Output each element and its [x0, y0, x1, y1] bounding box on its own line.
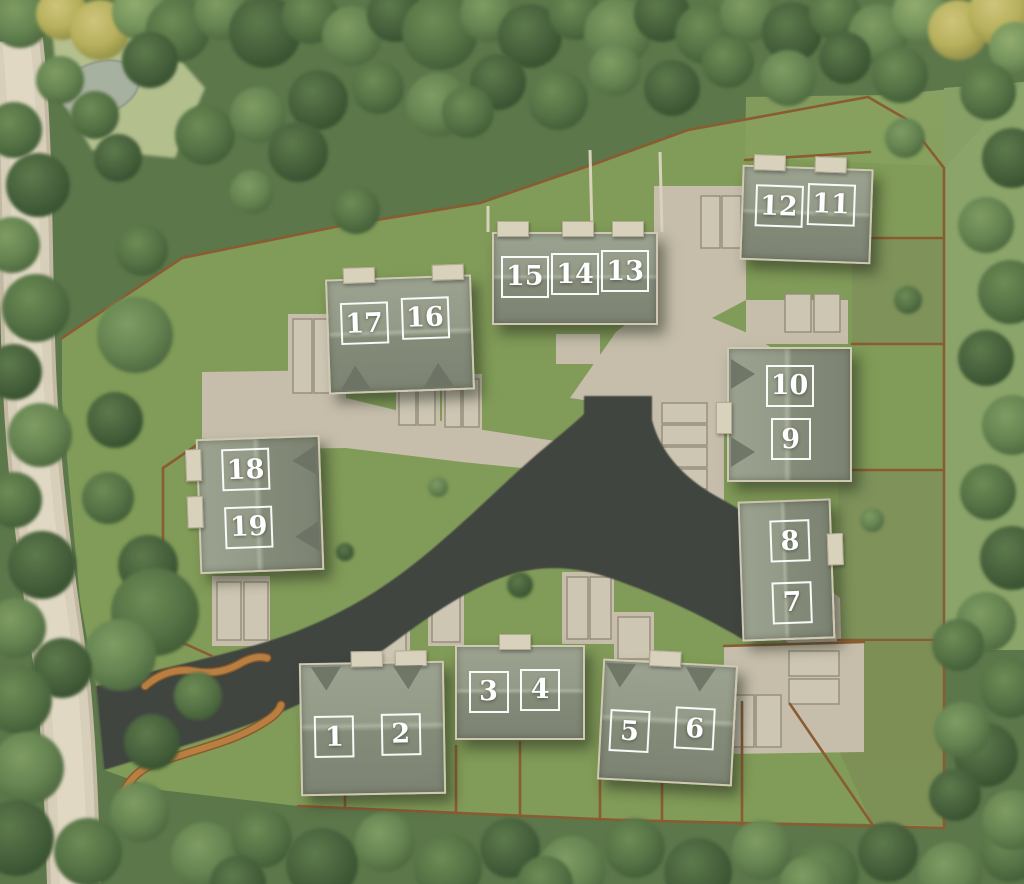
building-plots-18-19: 1819	[196, 435, 325, 574]
plot-number-plaque[interactable]: 18	[221, 448, 270, 492]
porch	[716, 402, 732, 434]
building-plots-9-10: 109	[727, 347, 852, 482]
plot-number-plaque[interactable]: 12	[754, 184, 803, 228]
plot-number-plaque[interactable]: 1	[314, 716, 355, 759]
dormer-roof	[423, 362, 454, 387]
buildings-layer: 12345687109121115141317161819	[0, 0, 1024, 884]
porch	[187, 496, 204, 529]
dormer-roof	[605, 663, 636, 689]
building-plots-1-2: 12	[299, 661, 446, 797]
building-plots-5-6: 56	[597, 659, 738, 787]
porch	[432, 264, 465, 281]
building-plots-13-14-15: 151413	[492, 232, 658, 325]
plot-number-plaque[interactable]: 10	[766, 365, 814, 407]
porch	[814, 156, 847, 173]
porch	[499, 634, 531, 650]
plot-number-plaque[interactable]: 19	[224, 505, 273, 549]
porch	[612, 221, 644, 237]
plot-number-plaque[interactable]: 13	[601, 250, 649, 292]
dormer-roof	[295, 521, 320, 552]
plot-number-plaque[interactable]: 2	[380, 713, 421, 756]
plot-number-plaque[interactable]: 7	[771, 581, 812, 624]
dormer-roof	[292, 445, 317, 476]
porch	[562, 221, 594, 237]
porch	[351, 651, 383, 668]
porch	[185, 449, 202, 482]
building-plots-11-12: 1211	[739, 165, 873, 265]
building-plots-16-17: 1716	[325, 274, 475, 394]
dormer-roof	[393, 665, 423, 690]
plot-number-plaque[interactable]: 14	[551, 253, 599, 295]
porch	[343, 267, 376, 284]
building-plots-7-8: 87	[738, 498, 836, 641]
plot-number-plaque[interactable]: 16	[400, 296, 449, 340]
dormer-roof	[311, 667, 341, 692]
porch	[649, 650, 682, 668]
plot-number-plaque[interactable]: 5	[609, 709, 651, 753]
site-plan: 12345687109121115141317161819	[0, 0, 1024, 884]
plot-number-plaque[interactable]: 11	[806, 183, 855, 227]
plot-number-plaque[interactable]: 17	[339, 302, 388, 346]
plot-number-plaque[interactable]: 4	[520, 669, 560, 711]
plot-number-plaque[interactable]: 3	[469, 671, 509, 713]
building-plots-3-4: 34	[455, 645, 585, 740]
plot-number-plaque[interactable]: 9	[771, 418, 811, 460]
plot-number-plaque[interactable]: 8	[769, 520, 810, 563]
plot-number-plaque[interactable]: 15	[501, 256, 549, 298]
porch	[754, 154, 787, 171]
porch	[827, 533, 844, 566]
dormer-roof	[685, 667, 716, 693]
dormer-roof	[731, 359, 755, 389]
porch	[497, 221, 529, 237]
dormer-roof	[731, 437, 755, 467]
dormer-roof	[340, 365, 371, 390]
plot-number-plaque[interactable]: 6	[674, 707, 716, 751]
